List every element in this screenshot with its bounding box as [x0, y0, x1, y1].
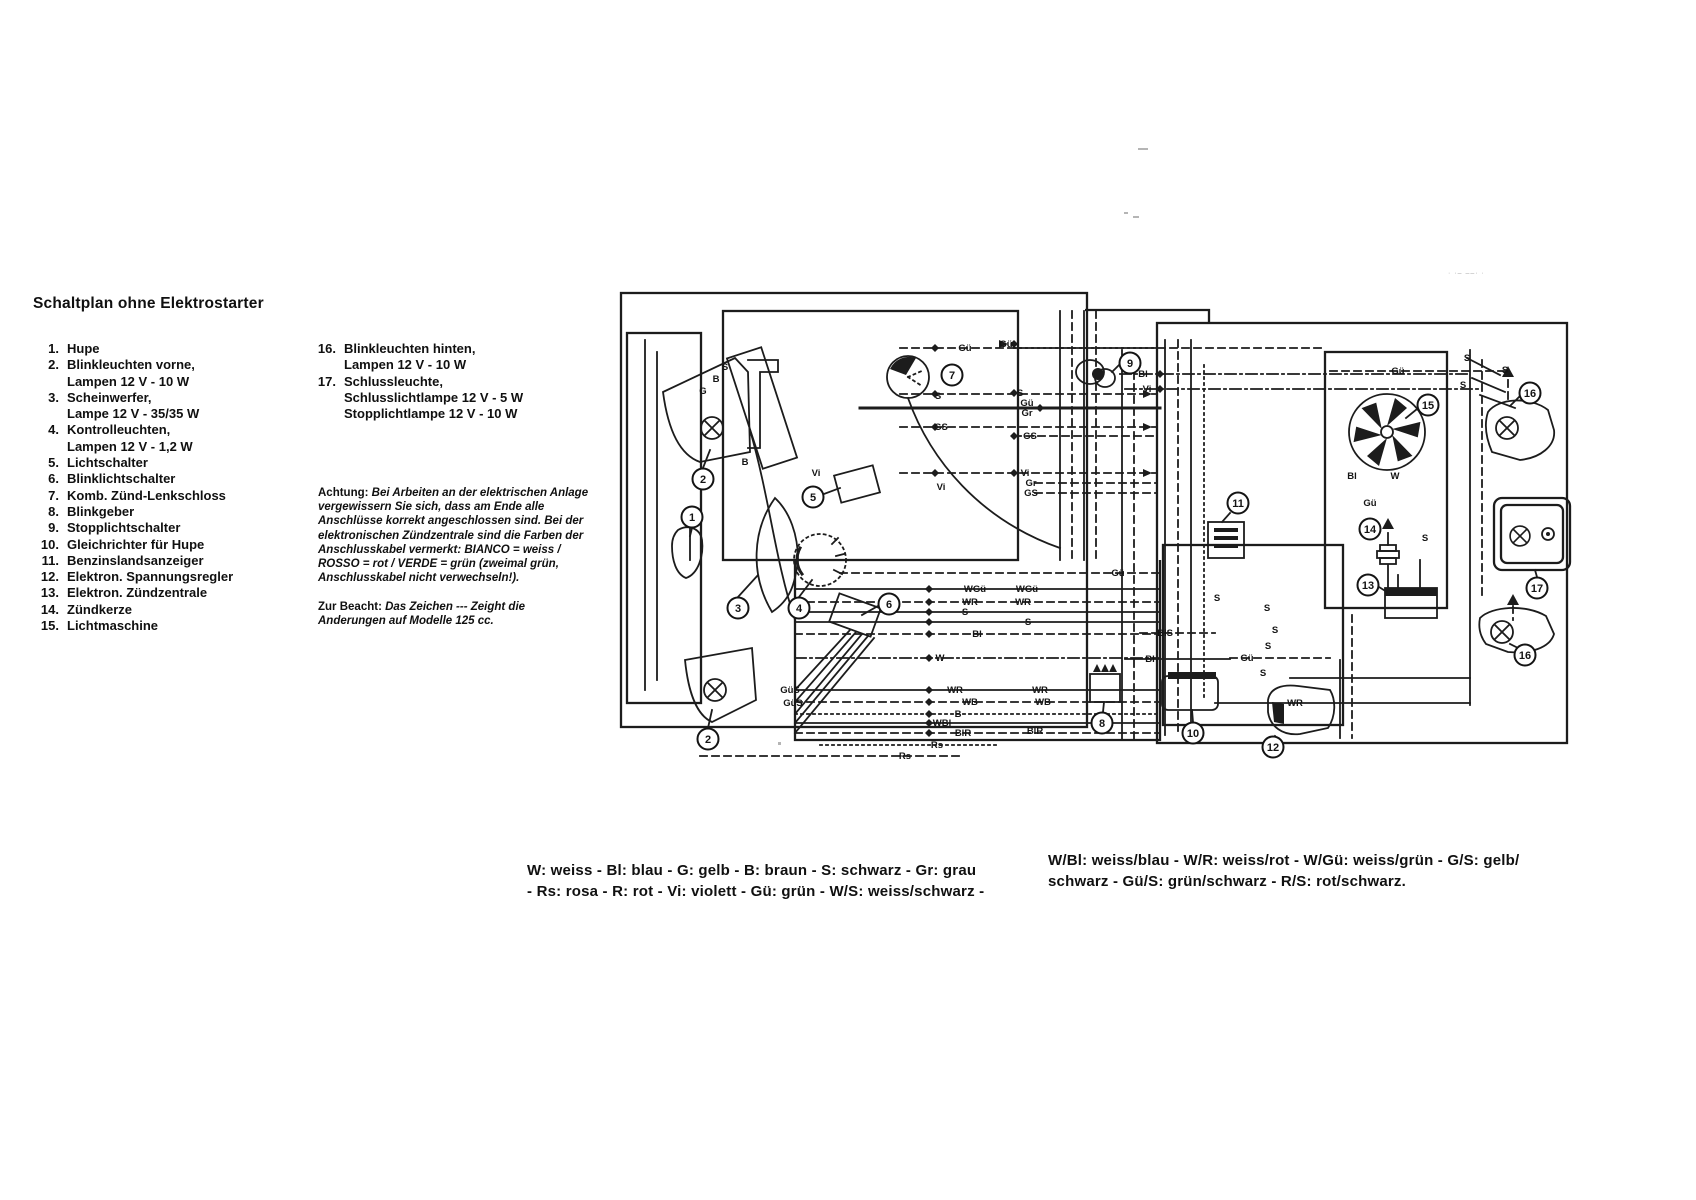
callout-10: 10	[1183, 723, 1204, 744]
wire-label: Gü	[958, 343, 971, 354]
wire-label: GüS	[783, 698, 803, 709]
callout-4: 4	[789, 598, 810, 619]
wiring-diagram: GüGüSSGüGrGSGSViViGrGSSBGBViBlViGüWGüWGü…	[0, 0, 1696, 1200]
misc-connectors	[750, 358, 1515, 733]
wire-label: BlS	[1157, 628, 1173, 639]
wire-label: WB	[962, 697, 978, 708]
wire-label: GS	[934, 422, 948, 433]
svg-text:16: 16	[1524, 388, 1536, 400]
wire-label: S	[935, 391, 941, 402]
wire-label: Gü	[1240, 653, 1253, 664]
rear-blinker-bottom	[1479, 608, 1554, 652]
wire-label: G	[699, 386, 706, 397]
wire-label: S	[1502, 365, 1508, 376]
wire-label: Gü	[999, 339, 1012, 350]
rear-blinker-top	[1486, 400, 1554, 460]
wire-label: Vi	[812, 468, 821, 479]
spark-plug-component	[1377, 533, 1399, 564]
wire-label: S	[1025, 617, 1031, 628]
svg-text:5: 5	[810, 492, 816, 504]
wire-label: S	[1460, 380, 1466, 391]
wire-label: S	[722, 362, 728, 373]
svg-text:6: 6	[886, 599, 892, 611]
wire-label: S	[1422, 533, 1428, 544]
wire-label: Bl	[1138, 369, 1148, 380]
svg-text:13: 13	[1362, 580, 1374, 592]
wire-label: Gü	[1391, 366, 1404, 377]
wire-label: BlR	[955, 728, 972, 739]
svg-text:1: 1	[689, 512, 695, 524]
wire-label: GS	[1024, 488, 1038, 499]
callout-7: 7	[942, 365, 963, 386]
wire-label: WR	[1032, 685, 1048, 696]
callout-11: 11	[1228, 493, 1249, 514]
wire-label: WGü	[964, 584, 986, 595]
wire-label: S	[1272, 625, 1278, 636]
arrow-markers	[999, 340, 1519, 605]
svg-text:2: 2	[700, 474, 706, 486]
callout-2: 2	[693, 469, 714, 490]
wire-label: WR	[947, 685, 963, 696]
horn-component	[672, 527, 702, 578]
wire-label: Gü	[1111, 568, 1124, 579]
light-switch-component	[834, 465, 880, 502]
svg-text:17: 17	[1531, 583, 1543, 595]
wire-label: S	[1260, 668, 1266, 679]
svg-text:11: 11	[1232, 498, 1244, 510]
wire-label: B	[713, 374, 720, 385]
wire-label: Rs	[899, 751, 911, 762]
callout-15: 15	[1418, 395, 1439, 416]
cdi-unit-component	[1379, 587, 1437, 618]
callout-3: 3	[728, 598, 749, 619]
fuel-gauge-sender-component	[1208, 513, 1244, 558]
callout-16: 16	[1515, 645, 1536, 666]
wire-label: Bl	[1347, 471, 1357, 482]
wire-label: Gr	[1021, 408, 1032, 419]
svg-text:14: 14	[1364, 524, 1377, 536]
wire-label: S	[1464, 353, 1470, 364]
callout-14: 14	[1360, 519, 1381, 540]
callout-12: 12	[1263, 737, 1284, 758]
svg-text:7: 7	[949, 370, 955, 382]
svg-text:12: 12	[1267, 742, 1279, 754]
rectifier-component	[1162, 672, 1218, 722]
callout-9: 9	[1120, 353, 1141, 374]
svg-text:3: 3	[735, 603, 741, 615]
wire-label: BlR	[1027, 726, 1044, 737]
svg-text:10: 10	[1187, 728, 1199, 740]
wire-label: W	[1391, 471, 1400, 482]
wire-label: GüS	[780, 685, 800, 696]
wire-label: GS	[1023, 431, 1037, 442]
svg-text:16: 16	[1519, 650, 1531, 662]
svg-text:2: 2	[705, 734, 711, 746]
svg-text:4: 4	[796, 603, 803, 615]
wire-label: Bl	[972, 629, 982, 640]
wire-label: Bl	[1145, 654, 1155, 665]
callouts-layer: 1223456789101112131415161716	[682, 353, 1548, 758]
callout-5: 5	[803, 487, 824, 508]
ignition-lock-component	[887, 356, 929, 398]
callout-13: 13	[1358, 575, 1379, 596]
blinker-switch-component	[829, 593, 881, 636]
scanned-manual-page: { "page": { "title": "Schaltplan ohne El…	[0, 0, 1696, 1200]
wire-label: W	[936, 653, 945, 664]
wire-label: Vi	[937, 482, 946, 493]
svg-text:9: 9	[1127, 358, 1133, 370]
callout-16: 16	[1520, 383, 1541, 404]
wire-label: S	[1265, 641, 1271, 652]
front-blinker-top	[663, 358, 778, 462]
callout-17: 17	[1527, 578, 1548, 599]
lower-wire-bundle	[700, 573, 1470, 756]
junction-markers	[925, 340, 1164, 737]
callout-1: 1	[682, 507, 703, 528]
wire-label: S	[962, 607, 968, 618]
wire-label: B	[955, 709, 962, 720]
wire-label: Rs	[931, 740, 943, 751]
voltage-regulator-component	[1268, 686, 1334, 740]
wire-label: WBl	[933, 718, 951, 729]
wire-label: WGü	[1016, 584, 1038, 595]
wire-label: Gü	[1363, 498, 1376, 509]
svg-text:15: 15	[1422, 400, 1434, 412]
wire-label: B	[742, 457, 749, 468]
wire-label: Vi	[1143, 384, 1152, 395]
callout-8: 8	[1092, 713, 1113, 734]
wire-label: S	[1214, 593, 1220, 604]
front-blinker-bottom	[685, 648, 756, 722]
callout-6: 6	[879, 594, 900, 615]
magneto-flywheel-component	[1348, 394, 1427, 470]
wire-label: WB	[1035, 697, 1051, 708]
wire-label: S	[1264, 603, 1270, 614]
svg-text:8: 8	[1099, 718, 1105, 730]
scan-specks	[778, 148, 1148, 745]
wire-label: WR	[1287, 698, 1303, 709]
flasher-relay-component	[1090, 664, 1120, 712]
callout-2: 2	[698, 729, 719, 750]
wire-label: WR	[1015, 597, 1031, 608]
